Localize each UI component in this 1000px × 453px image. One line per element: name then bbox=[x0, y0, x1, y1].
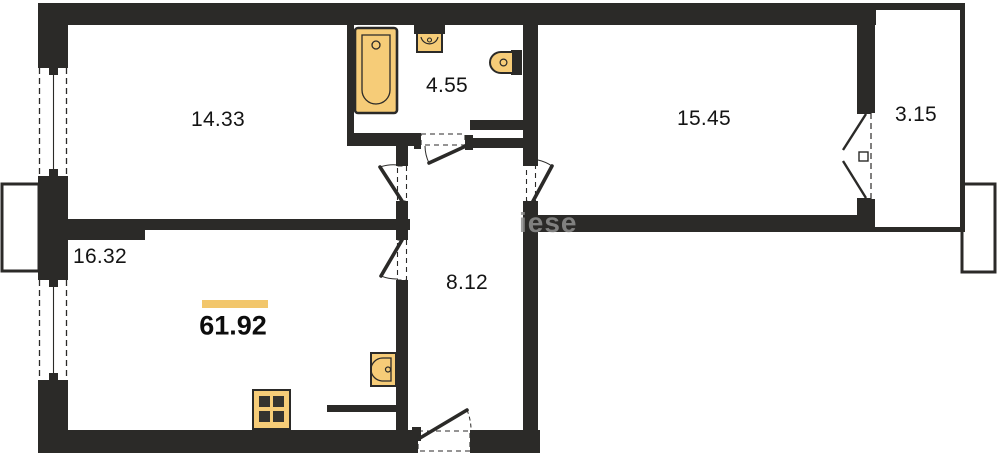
area-label-hallway: 8.12 bbox=[446, 271, 488, 295]
french-door-icon bbox=[843, 113, 871, 199]
door-entrance-icon bbox=[418, 410, 471, 451]
floor-plan: iese 14.33 4.55 15.45 3.15 16.32 8.12 61… bbox=[0, 0, 1000, 453]
door-room-top-right-icon bbox=[527, 160, 553, 203]
door-bathroom-icon bbox=[421, 134, 466, 163]
window-icon-bottom bbox=[40, 280, 67, 380]
window-icon-top bbox=[40, 68, 67, 176]
exterior-block-left bbox=[2, 184, 39, 271]
watermark-text: iese bbox=[519, 207, 578, 238]
door-kitchen-icon bbox=[381, 240, 407, 280]
area-label-room-top-right: 15.45 bbox=[677, 107, 731, 131]
stove-icon bbox=[253, 390, 290, 429]
exterior-block-right bbox=[962, 184, 995, 272]
toilet-icon bbox=[490, 50, 522, 75]
bathtub-icon bbox=[355, 28, 397, 113]
area-label-room-top-left: 14.33 bbox=[191, 108, 245, 132]
total-area-highlight bbox=[202, 300, 268, 308]
door-room-top-left-icon bbox=[380, 165, 407, 201]
total-area-label: 61.92 bbox=[199, 311, 267, 342]
area-label-bathroom: 4.55 bbox=[426, 74, 468, 98]
bathroom-sink-icon bbox=[414, 25, 445, 52]
area-label-kitchen: 16.32 bbox=[73, 245, 127, 269]
kitchen-sink-icon bbox=[371, 353, 396, 386]
area-label-balcony: 3.15 bbox=[895, 103, 937, 127]
floor-plan-drawing: iese bbox=[0, 0, 1000, 453]
